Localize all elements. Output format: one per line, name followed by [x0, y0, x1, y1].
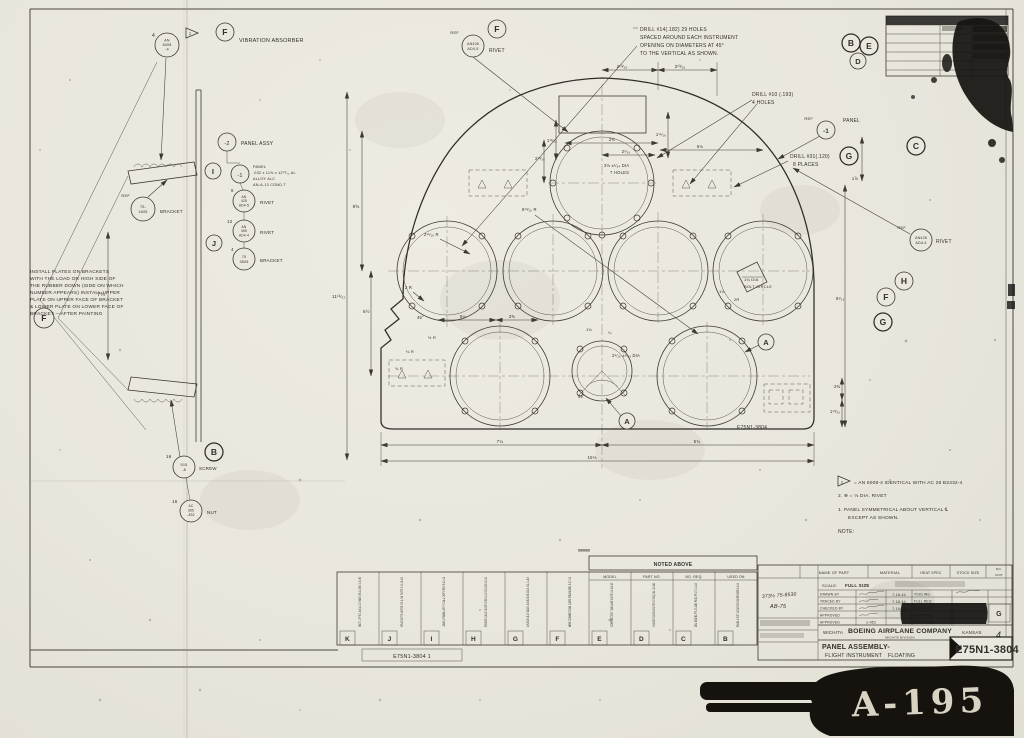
svg-text:3805: 3805 — [240, 260, 249, 264]
svg-text:APPROVED: APPROVED — [820, 621, 840, 625]
rubber-mount-lower — [134, 399, 182, 402]
centerlines — [388, 84, 810, 468]
svg-text:7 HOLES: 7 HOLES — [610, 170, 629, 175]
svg-text:2R: 2R — [734, 297, 740, 302]
noted-above: NOTED ABOVE — [654, 562, 693, 568]
drawing-title: PANEL ASSEMBLY- — [822, 644, 890, 651]
svg-text:¾ R: ¾ R — [395, 366, 403, 371]
svg-text:SPACED AROUND EACH INSTRUMENT: SPACED AROUND EACH INSTRUMENT — [640, 35, 738, 41]
svg-text:2⁹⁄₁₆ ±¹⁄₆₄ DIA: 2⁹⁄₁₆ ±¹⁄₆₄ DIA — [612, 353, 640, 358]
hole-note: 3⅛ ±¹⁄₆₄ DIA — [604, 163, 629, 168]
redaction-blob — [901, 603, 988, 624]
svg-text:PART NO.: PART NO. — [643, 575, 661, 579]
svg-text:1⅛: 1⅛ — [586, 327, 592, 332]
ink-blot-top-right — [911, 18, 1015, 309]
title-block: NOTED ABOVE MODEL PART NO. NO. REQ. USED… — [337, 556, 1020, 661]
svg-text:TOOLING: TOOLING — [914, 593, 930, 597]
svg-text:REF: REF — [804, 116, 813, 121]
svg-text:FLIGHT INSTRUMENT: FLIGHT INSTRUMENT — [825, 653, 883, 659]
drill10-note: DRILL #10 (.193) — [752, 92, 794, 98]
svg-text:2¹³⁄₁₆: 2¹³⁄₁₆ — [617, 64, 628, 69]
svg-text:PANEL: PANEL — [253, 165, 266, 169]
svg-text:BRACKET: BRACKET — [160, 209, 183, 214]
svg-text:AN-A-13 COND.T: AN-A-13 COND.T — [253, 183, 286, 187]
svg-text:½ R: ½ R — [428, 335, 436, 340]
stamp-text: A-195 — [850, 681, 989, 726]
svg-text:ALLOY ALC: ALLOY ALC — [253, 177, 275, 181]
svg-text:-8: -8 — [182, 468, 186, 472]
svg-text:MAT'L SPEC AN-A-13 WAS 98-A-36: MAT'L SPEC AN-A-13 WAS 98-A-366 2-6-45 — [357, 577, 362, 627]
svg-text:.032 x 11⅝ x 12¹³⁄₁₆ AL: .032 x 11⅝ x 12¹³⁄₁₆ AL — [253, 171, 296, 175]
svg-text:1⅛: 1⅛ — [719, 289, 725, 294]
part-bracket-ref: 75- — [140, 205, 147, 209]
svg-text:2⅜: 2⅜ — [834, 384, 841, 389]
svg-text:RIVET: RIVET — [489, 48, 505, 54]
svg-text:USED ON: USED ON — [727, 575, 745, 579]
svg-text:1¹³⁄₃₂: 1¹³⁄₃₂ — [547, 138, 558, 143]
svg-text:BRACKET —AFTER PAINTING: BRACKET —AFTER PAINTING — [30, 311, 103, 317]
note-flag-icon — [838, 476, 850, 486]
svg-text:REF: REF — [450, 30, 459, 35]
svg-text:MATERIAL: MATERIAL — [880, 571, 900, 575]
callout-C: C — [913, 141, 919, 151]
svg-text:AD4-4: AD4-4 — [915, 241, 926, 245]
bolt-circle-note: 1¾ DIA — [744, 277, 759, 282]
svg-text:REF: REF — [121, 193, 130, 198]
blueprint-sheet: F F B E D C G H F G F I J B A A -1 AN 60… — [0, 0, 1024, 738]
fold-lines — [30, 0, 345, 738]
callout-F: F — [883, 292, 888, 302]
svg-text:INSTALL PLATES ON BRACKETS: INSTALL PLATES ON BRACKETS — [30, 269, 109, 275]
callout-G: G — [846, 151, 853, 161]
svg-text:RIVET: RIVET — [260, 200, 274, 205]
svg-text:2¹¹⁄₁₆ R: 2¹¹⁄₁₆ R — [424, 232, 439, 237]
svg-text:NEW CONNECTION CARD RELEASED: NEW CONNECTION CARD RELEASED 9-17-43 — [567, 577, 572, 627]
note-flag-line: = AN 6008-4 IDENTICAL WITH AC 28 B2432-4 — [854, 480, 963, 486]
note-1: 1. PANEL SYMMETRICAL ABOUT VERTICAL ℄ — [838, 507, 949, 513]
svg-text:¼: ¼ — [608, 330, 612, 335]
callout-circles: F F B E D C G H F G F I J B A A -1 — [34, 20, 925, 461]
svg-text:NUT: NUT — [207, 510, 217, 515]
svg-text:NO.: NO. — [996, 567, 1002, 571]
svg-text:B: B — [723, 636, 728, 643]
svg-text:⅛ R: ⅛ R — [406, 349, 414, 354]
drill14-note: DRILL #14(.182) 29 HOLES — [640, 27, 707, 33]
svg-text:I: I — [430, 636, 432, 643]
strip-number: E75N1-3804 1 — [393, 654, 431, 660]
svg-text:8 PLACES: 8 PLACES — [793, 162, 819, 168]
drawing-canvas: F F B E D C G H F G F I J B A A -1 AN 60… — [0, 0, 1024, 738]
svg-text:STOCK SIZE: STOCK SIZE — [957, 571, 980, 575]
svg-text:1¹³⁄₁₆: 1¹³⁄₁₆ — [830, 409, 840, 414]
qty: 4 — [152, 33, 155, 39]
callout-A: A — [624, 417, 630, 426]
svg-text:7¼: 7¼ — [497, 439, 504, 444]
svg-text:HEAT SPEC: HEAT SPEC — [920, 571, 942, 575]
svg-text:6½: 6½ — [363, 308, 370, 314]
svg-text:WICHITA: WICHITA — [823, 630, 843, 635]
callout-neg1: -1 — [823, 129, 829, 135]
svg-text:AB-75: AB-75 — [769, 604, 787, 610]
vibration-absorber-label: VIBRATION ABSORBER — [239, 38, 304, 44]
top-cutout-rect — [559, 96, 646, 133]
svg-text:& LOWER PLATE ON LOWER FACE OF: & LOWER PLATE ON LOWER FACE OF — [30, 304, 124, 310]
svg-text:H: H — [471, 636, 476, 643]
svg-text:BRACKET: BRACKET — [260, 258, 283, 263]
svg-text:5¼: 5¼ — [460, 314, 467, 319]
svg-text:REF: REF — [897, 225, 906, 230]
svg-text:6008: 6008 — [163, 43, 172, 47]
svg-text:2¹⁄₁₆: 2¹⁄₁₆ — [622, 149, 631, 154]
svg-text:1⅞: 1⅞ — [852, 176, 859, 181]
part-an6008: AN — [164, 39, 170, 43]
svg-text:1-451: 1-451 — [866, 621, 876, 625]
svg-text:45°: 45° — [578, 394, 585, 399]
svg-text:WICHITA DIVISION: WICHITA DIVISION — [885, 636, 914, 640]
svg-text:5¾: 5¾ — [694, 439, 701, 444]
svg-text:PLATE ON UPPER FACE OF BRACKET: PLATE ON UPPER FACE OF BRACKET — [30, 297, 123, 303]
svg-text:E: E — [597, 636, 602, 643]
callout-H: H — [901, 276, 907, 286]
svg-text:8¹³⁄₁₆ R: 8¹³⁄₁₆ R — [522, 207, 537, 212]
svg-text:9⅝: 9⅝ — [353, 204, 360, 209]
svg-text:BOLT CIRCLE: BOLT CIRCLE — [744, 284, 772, 289]
svg-text:UNIT: UNIT — [995, 573, 1003, 577]
svg-text:3⅜: 3⅜ — [509, 314, 516, 319]
svg-text:-832: -832 — [187, 513, 194, 517]
dim-7-3-4: 7¾ — [97, 292, 105, 298]
svg-text:5⅛: 5⅛ — [697, 144, 704, 149]
svg-text:RIVET: RIVET — [936, 239, 952, 245]
svg-text:F: F — [555, 636, 559, 643]
svg-text:RIVET: RIVET — [260, 230, 274, 235]
svg-text:16: 16 — [166, 454, 172, 459]
callout-B: B — [848, 38, 854, 48]
drill-notes: DRILL #14(.182) 29 HOLES SPACED AROUND E… — [633, 27, 860, 168]
svg-text:NUMBER APPEARS) INSTALL UPPER: NUMBER APPEARS) INSTALL UPPER — [30, 290, 120, 296]
drawing-number-inline: E75N1-3804 — [737, 425, 767, 431]
svg-text:FULL REQ.: FULL REQ. — [914, 600, 933, 604]
svg-text:CHANGED CONTOUR AS PER CH REQ: CHANGED CONTOUR AS PER CH REQ 1561 12-14… — [651, 583, 656, 627]
callout-B: B — [211, 447, 217, 457]
svg-text:FLOATING: FLOATING — [888, 653, 915, 659]
svg-text:REMOVED CABLE HOLDER SCREW & N: REMOVED CABLE HOLDER SCREW & NUT CB-2745… — [483, 577, 488, 627]
svg-text:455: 455 — [241, 229, 247, 233]
svg-text:8¹⁄₁₆: 8¹⁄₁₆ — [836, 296, 845, 301]
part-3805: 75 — [242, 255, 246, 259]
handwritten-number: 373½ 75-8530 — [762, 591, 797, 600]
panel-label: PANEL — [843, 118, 860, 124]
note-rivet-line: 2. ⊕ = ⅛ DIA. RIVET — [838, 493, 887, 499]
svg-text:K: K — [345, 636, 350, 643]
svg-text:PANEL & INST LOCATING DIM REVI: PANEL & INST LOCATING DIM REVISED 6-9-44 — [735, 583, 740, 627]
svg-text:7-18-44: 7-18-44 — [892, 593, 906, 597]
svg-text:-3800-2 PANEL ASS'Y CALL OUTS: -3800-2 PANEL ASS'Y CALL OUTS REV 9-12-4… — [441, 577, 446, 627]
svg-text:2 R: 2 R — [405, 285, 412, 290]
sheet-border — [30, 9, 1013, 667]
part-screw: 515 — [181, 463, 188, 467]
svg-text:CORRECTED TUBULAR NOTE 10-18-: CORRECTED TUBULAR NOTE 10-18-43 — [609, 583, 614, 627]
svg-text:11¹³⁄₃₂: 11¹³⁄₃₂ — [332, 294, 345, 299]
svg-text:NO. REQ.: NO. REQ. — [685, 575, 702, 579]
svg-text:DRAWN BY: DRAWN BY — [820, 593, 840, 597]
svg-text:TRACED BY: TRACED BY — [820, 600, 841, 604]
callout-F: F — [222, 27, 227, 37]
note-title: NOTE: — [838, 529, 854, 535]
svg-text:SCALE:: SCALE: — [822, 583, 837, 588]
callout-D: D — [855, 57, 861, 66]
notes-block: 2 = AN 6008-4 IDENTICAL WITH AC 28 B2432… — [838, 476, 963, 535]
part-an426: AN426 — [467, 42, 479, 46]
callout-G: G — [880, 317, 887, 327]
svg-text:EXCEPT AS SHOWN.: EXCEPT AS SHOWN. — [848, 515, 899, 521]
callout-A: A — [763, 338, 769, 347]
svg-text:DEL MODEL PT-17 ADD PD3L PT-17: DEL MODEL PT-17 ADD PD3L PT-17 3-1-44 — [693, 583, 698, 627]
svg-text:AD4-5: AD4-5 — [467, 47, 478, 51]
zone-letter: G — [996, 611, 1002, 618]
svg-text:CHECKED BY: CHECKED BY — [820, 607, 844, 611]
svg-text:BRACKETS WERE 53 & 54 PART 2: BRACKETS WERE 53 & 54 PART 2 8-16-43 — [399, 577, 404, 627]
svg-text:-4: -4 — [165, 48, 169, 52]
svg-text:SCREW: SCREW — [199, 466, 217, 471]
svg-text:45°: 45° — [417, 315, 424, 320]
svg-text:MODEL: MODEL — [603, 575, 616, 579]
part-nut: AC — [189, 504, 194, 508]
drawing-number: E75N1-3804 — [955, 644, 1019, 656]
drill31-note: DRILL #31(.120) — [790, 154, 830, 160]
svg-text:4 HOLES: 4 HOLES — [752, 100, 775, 106]
callout-J: J — [212, 239, 216, 248]
svg-text:425: 425 — [241, 199, 247, 203]
leader-lines — [413, 46, 910, 416]
svg-text:3¹³⁄₁₆: 3¹³⁄₁₆ — [675, 64, 686, 69]
svg-text:OPENING ON DIAMETERS AT 45°: OPENING ON DIAMETERS AT 45° — [640, 43, 724, 49]
callout-F: F — [494, 24, 499, 34]
svg-text:AD4-5: AD4-5 — [239, 204, 249, 208]
svg-text:1¹¹⁄₁₆: 1¹¹⁄₁₆ — [656, 132, 666, 137]
svg-text:J: J — [388, 636, 392, 643]
company-name: BOEING AIRPLANE COMPANY — [848, 628, 952, 635]
svg-text:G: G — [513, 636, 518, 643]
svg-text:12: 12 — [227, 219, 233, 224]
revision-table: K MAT'L SPEC AN-A-13 WAS 98-A-366 2-6-45… — [340, 577, 740, 645]
svg-text:AN515-8-8 WAS AN520-B10-8 10-: AN515-8-8 WAS AN520-B10-8 10-1-43 — [525, 577, 530, 627]
svg-text:FULL SIZE: FULL SIZE — [845, 583, 869, 588]
callout-I: I — [212, 167, 214, 176]
svg-text:16: 16 — [172, 499, 178, 504]
svg-text:NAME OF PART: NAME OF PART — [819, 571, 850, 575]
part-neg1: -1 — [237, 173, 242, 179]
svg-text:PANEL ASSY: PANEL ASSY — [241, 141, 274, 147]
id-stamp: A-195 — [700, 666, 1014, 736]
svg-text:KANSAS: KANSAS — [962, 630, 981, 635]
callout-E: E — [866, 41, 872, 51]
svg-text:AD4-4: AD4-4 — [239, 234, 249, 238]
svg-text:365: 365 — [188, 509, 194, 513]
svg-text:1605: 1605 — [138, 210, 147, 214]
flag-2 — [186, 28, 198, 38]
svg-text:6: 6 — [231, 188, 234, 193]
svg-text:2⅜: 2⅜ — [609, 137, 616, 142]
svg-text:THE RUBBER DOWN (SIDE ON WHICH: THE RUBBER DOWN (SIDE ON WHICH — [30, 283, 124, 289]
svg-text:15⅛: 15⅛ — [587, 455, 596, 460]
svg-text:WITH THE LOAD OR HIGH SIDE OF: WITH THE LOAD OR HIGH SIDE OF — [30, 276, 116, 282]
svg-text:TO THE VERTICAL AS SHOWN.: TO THE VERTICAL AS SHOWN. — [640, 51, 718, 57]
svg-text:D: D — [639, 636, 644, 643]
part-neg2: -2 — [224, 141, 229, 147]
svg-text:C: C — [681, 636, 686, 643]
install-note: INSTALL PLATES ON BRACKETS WITH THE LOAD… — [30, 269, 124, 317]
svg-text:APPROVED: APPROVED — [820, 614, 840, 618]
part-an426: AN426 — [915, 236, 927, 240]
svg-text:2¹³⁄₁₆: 2¹³⁄₁₆ — [535, 156, 545, 161]
panel-outline — [381, 78, 814, 429]
svg-text:4: 4 — [231, 247, 234, 252]
